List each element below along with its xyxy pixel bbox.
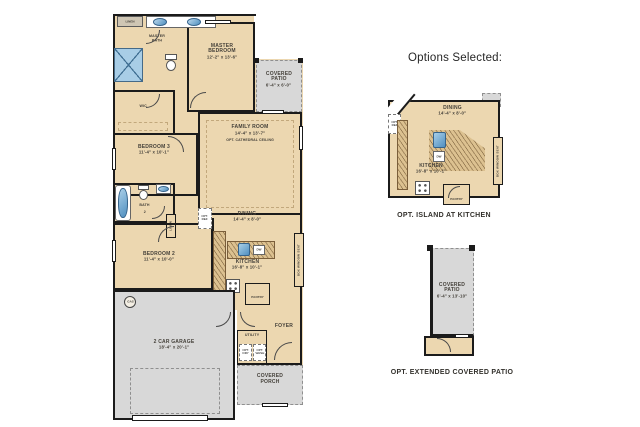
room-name: PANTRY: [251, 296, 264, 300]
options-header: Options Selected:: [408, 52, 502, 64]
pantry-label-option: PANTRY: [443, 196, 470, 204]
room-label-master-bedroom: MASTER BEDROOM 12'-2" x 13'-6": [196, 42, 248, 64]
toilet-icon: [139, 190, 148, 200]
room-dims: 14'-4" x 8'-0": [233, 218, 261, 223]
linen-label: LINEN: [126, 20, 135, 23]
room-name: FOYER: [275, 324, 293, 330]
room-dims: 12'-2" x 13'-6": [207, 56, 237, 61]
room-num: 2: [144, 210, 146, 214]
room-name: COVERED PORCH: [250, 374, 290, 386]
window-marker: [299, 126, 303, 150]
gas-meter-icon: GAS: [124, 296, 136, 308]
opt-dry-line2: DRY: [242, 353, 248, 356]
room-dims: 14'-4" x 8'-0": [439, 112, 467, 117]
room-name: PANTRY: [450, 198, 463, 202]
room-name: MASTER BEDROOM: [202, 44, 242, 56]
window-marker: [205, 20, 231, 24]
dw-label: DW: [257, 249, 262, 252]
dw-label: DW: [437, 155, 442, 158]
box-window-seat-option: BOX WINDOW SEAT: [493, 137, 503, 185]
room-dims: 14'-4" x 13'-7": [235, 132, 265, 137]
room-label-covered-porch: COVERED PORCH: [243, 372, 297, 388]
room-name: 2 CAR GARAGE: [154, 340, 195, 346]
room-label-bedroom2: BEDROOM 2 11'-4" x 10'-0": [128, 250, 190, 266]
sink-icon: [238, 243, 250, 256]
room-label-garage: 2 CAR GARAGE 18'-4" x 20'-1": [130, 338, 218, 354]
patio-post: [427, 245, 433, 251]
dishwasher-box: DW: [253, 245, 265, 255]
room-name: DINING: [238, 212, 257, 218]
room-note: OPT. CATHEDRAL CEILING: [226, 139, 274, 143]
opt-dryer-box: OPT. DRY: [239, 344, 252, 361]
room-name: BEDROOM 3: [138, 145, 170, 151]
sink-icon: [433, 132, 446, 148]
patio-post: [298, 58, 303, 63]
room-label-dining-option: DINING 14'-4" x 8'-0": [425, 104, 480, 120]
room-name: UTILITY: [245, 334, 259, 338]
room-name: KITCHEN: [419, 164, 443, 170]
room-dims: 11'-4" x 10'-0": [144, 258, 174, 263]
window-seat-label: BOX WINDOW SEAT: [497, 145, 500, 177]
porch-opening: [262, 403, 288, 407]
room-label-kitchen-option: KITCHEN 16'-8" x 10'-1": [403, 162, 459, 178]
room-dims: 6'-4" x 13'-10": [437, 295, 467, 300]
room-name: DINING: [443, 106, 462, 112]
garage-door-opening: [132, 415, 208, 421]
kitchen-counter-option: [397, 120, 408, 190]
room-label-covered-patio: COVERED PATIO 6'-4" x 6'-0": [258, 72, 300, 90]
opt-washer-box: OPT. WASH: [253, 344, 266, 361]
pantry-label: PANTRY: [245, 293, 270, 302]
opt-ref-line2: REF: [202, 219, 208, 222]
room-name: BATH: [140, 203, 150, 207]
room-name: BEDROOM 2: [143, 252, 175, 258]
opt-dry-label: OPT. DRY: [242, 349, 249, 355]
room-dims: 16'-8" x 10'-1": [416, 170, 446, 175]
sink-icon: [153, 18, 167, 26]
room-dims: 11'-4" x 10'-1": [139, 151, 169, 156]
opt-wash-line2: WASH: [255, 353, 264, 356]
window-marker: [112, 148, 116, 170]
room-label-kitchen: KITCHEN 16'-8" x 10'-1": [220, 258, 275, 274]
window-marker: [112, 240, 116, 262]
window-marker: [262, 110, 284, 114]
opt-ref-label: OPT. REF: [202, 215, 209, 221]
linen-closet: LINEN: [117, 16, 143, 27]
opt-wash-label: OPT. WASH: [255, 349, 264, 355]
box-window-seat: BOX WINDOW SEAT: [294, 233, 304, 287]
wic-shelf: [118, 122, 168, 131]
gas-label: GAS: [127, 301, 134, 304]
room-dims: 6'-4" x 6'-0": [266, 84, 291, 89]
room-dims: 18'-4" x 20'-1": [159, 346, 189, 351]
option2-caption: OPT. EXTENDED COVERED PATIO: [382, 369, 522, 376]
room-name: COVERED PATIO: [264, 72, 294, 84]
option1-caption: OPT. ISLAND AT KITCHEN: [385, 212, 503, 219]
toilet-icon: [166, 60, 176, 71]
floorplan-sheet: COVERED PATIO 6'-4" x 6'-0" MASTER BEDRO…: [0, 0, 640, 427]
tub-icon: [118, 188, 128, 218]
garage-dashed-area: [130, 368, 220, 414]
window-marker: [455, 334, 469, 338]
room-name: COVERED PATIO: [436, 283, 468, 295]
sink-icon: [187, 18, 201, 26]
mask: [254, 12, 304, 59]
sink-icon: [158, 186, 169, 192]
dishwasher-box: DW: [433, 151, 445, 162]
opt-ref-box: OPT. REF: [198, 208, 212, 229]
room-dims: 16'-8" x 10'-1": [232, 266, 262, 271]
kitchen-island: [227, 241, 275, 259]
room-name: FAMILY ROOM: [232, 125, 269, 131]
room-label-utility: UTILITY: [237, 332, 267, 340]
room-name: KITCHEN: [236, 260, 260, 266]
room-label-foyer: FOYER: [268, 322, 300, 332]
room-label-family: FAMILY ROOM 14'-4" x 13'-7" OPT. CATHEDR…: [222, 122, 278, 148]
stove-icon: [415, 181, 430, 195]
room-label-dining: DINING 14'-4" x 8'-0": [222, 210, 272, 226]
shower-icon: [114, 48, 143, 82]
room-label-patio-option: COVERED PATIO 6'-4" x 13'-10": [432, 278, 472, 306]
patio-post: [469, 245, 475, 251]
window-seat-label: BOX WINDOW SEAT: [298, 244, 301, 276]
